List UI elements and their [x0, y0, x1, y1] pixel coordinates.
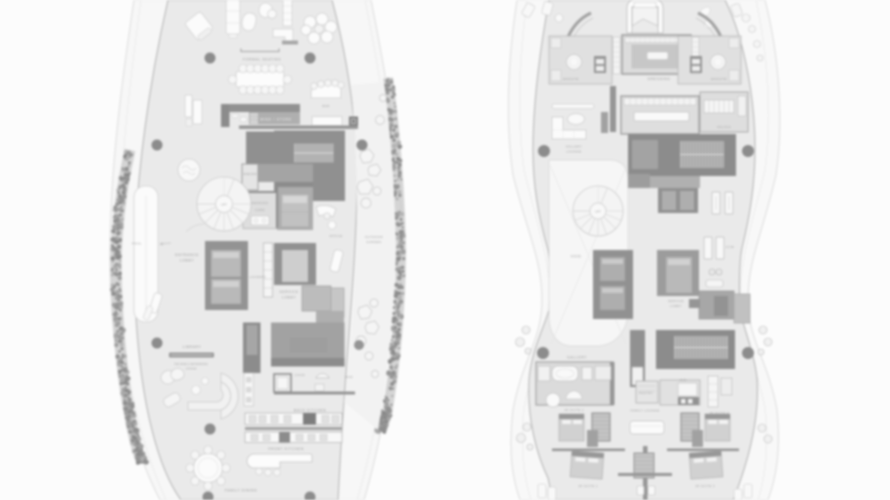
svg-text:ENTRANCE: ENTRANCE — [175, 253, 199, 257]
svg-text:THE WINE & NETWORKING: THE WINE & NETWORKING — [174, 364, 208, 366]
svg-text:BAR: BAR — [322, 104, 330, 108]
svg-text:GARDEN: GARDEN — [366, 240, 381, 244]
svg-text:VOID: VOID — [571, 255, 582, 259]
svg-text:CARD: CARD — [255, 208, 266, 212]
svg-text:ENSUITE: ENSUITE — [563, 77, 579, 81]
svg-text:GALLERY: GALLERY — [567, 356, 587, 360]
svg-text:BACK KITCHEN: BACK KITCHEN — [294, 409, 327, 413]
svg-text:OFFICE: OFFICE — [329, 234, 342, 238]
svg-text:DRESSING: DRESSING — [648, 77, 671, 81]
svg-text:LOBBY: LOBBY — [670, 304, 682, 308]
svg-text:ENSUITE: ENSUITE — [711, 77, 727, 81]
svg-text:WINE BAR: WINE BAR — [243, 173, 256, 176]
svg-text:GYM: GYM — [726, 245, 734, 249]
svg-text:MUD: MUD — [345, 375, 353, 379]
svg-text:JR SUITE 3: JR SUITE 3 — [695, 484, 715, 488]
svg-text:JR SUITE 1: JR SUITE 1 — [578, 484, 598, 488]
svg-text:LOBBY: LOBBY — [180, 259, 195, 263]
svg-text:LAUNDRY: LAUNDRY — [249, 275, 266, 279]
svg-text:LIBRARY: LIBRARY — [183, 345, 202, 349]
svg-text:JR SUITE 2: JR SUITE 2 — [564, 408, 584, 412]
svg-text:WINE / STORE: WINE / STORE — [260, 118, 292, 122]
svg-text:VALIGIA: VALIGIA — [717, 125, 731, 129]
svg-text:LOUNGE: LOUNGE — [566, 150, 581, 154]
svg-text:MAID: MAID — [680, 379, 687, 382]
svg-text:FORMAL SEATING: FORMAL SEATING — [243, 58, 281, 62]
svg-text:OUTDOOR: OUTDOOR — [365, 235, 384, 239]
svg-text:FAMILY DINING: FAMILY DINING — [225, 489, 258, 493]
svg-text:LIFT: LIFT — [221, 202, 227, 206]
svg-text:POOL: POOL — [132, 242, 142, 246]
svg-text:LOUNGE: LOUNGE — [186, 369, 197, 371]
svg-text:FRONT KITCHEN: FRONT KITCHEN — [268, 447, 304, 451]
svg-text:PANTRY: PANTRY — [639, 391, 653, 395]
svg-text:LOBBY: LOBBY — [282, 296, 297, 300]
svg-text:SERVICE: SERVICE — [668, 299, 684, 303]
svg-text:LIFT: LIFT — [595, 209, 601, 213]
svg-text:SMOKING: SMOKING — [252, 201, 269, 205]
svg-text:COOK: COOK — [295, 373, 305, 377]
svg-text:FAMILY LOUNGE: FAMILY LOUNGE — [630, 409, 659, 413]
svg-text:SERVICE: SERVICE — [279, 290, 298, 294]
svg-text:GALLERY: GALLERY — [566, 145, 583, 149]
